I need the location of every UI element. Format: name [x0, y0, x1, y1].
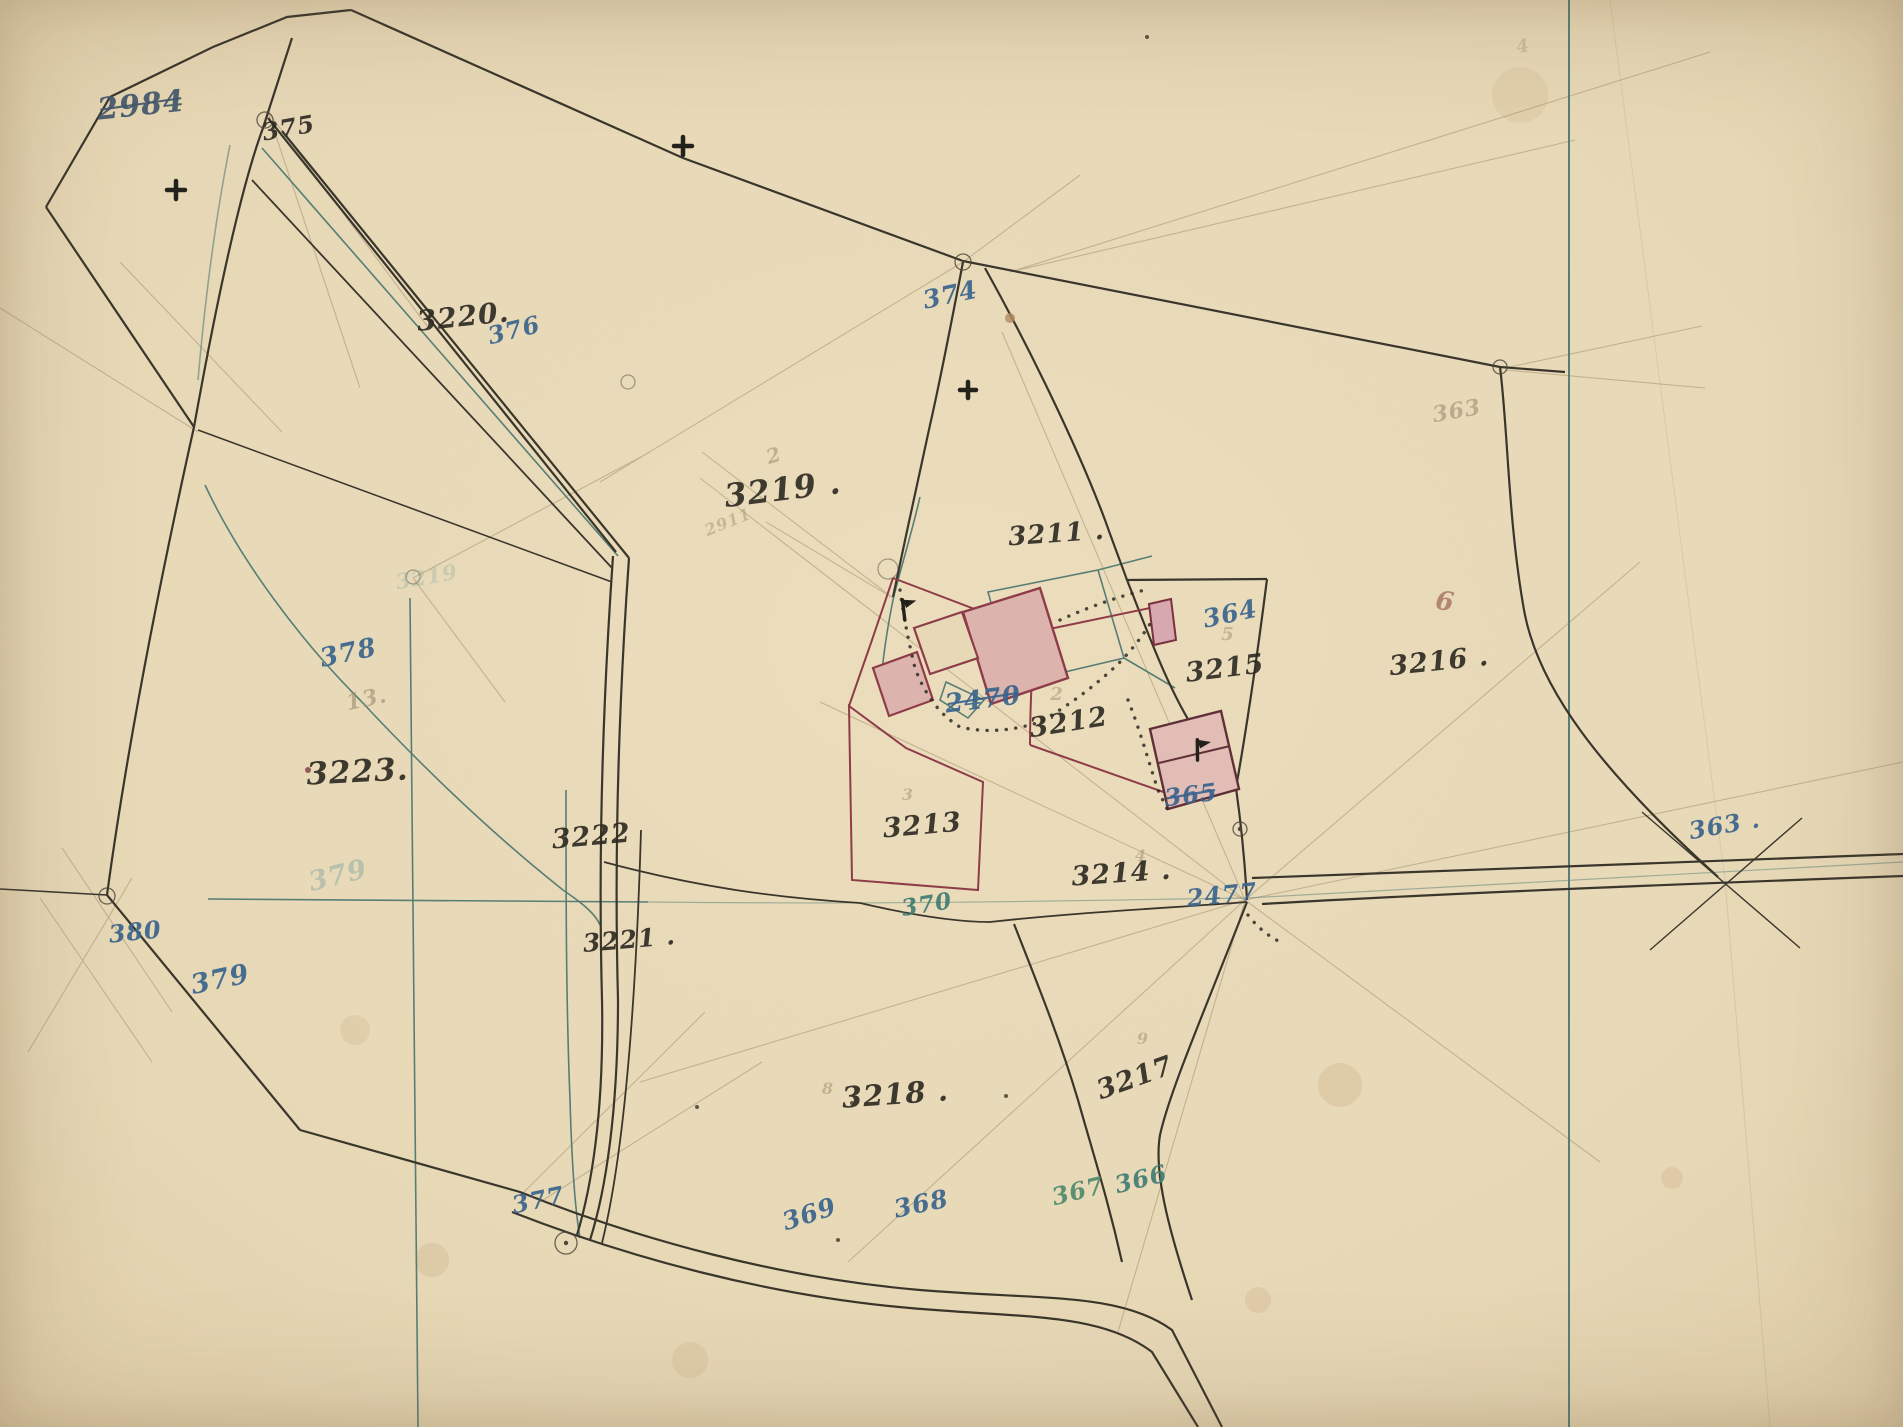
parcel-number: 3223.: [306, 751, 410, 792]
parcel-number: 5: [1221, 624, 1235, 645]
ink-speck: [1004, 1094, 1008, 1098]
parcel-label-380: 380: [107, 914, 163, 948]
paper-stain: [672, 1342, 708, 1378]
building-364: [1149, 599, 1176, 645]
parcel-number: 380: [107, 914, 163, 948]
ink-speck: [836, 1238, 840, 1242]
paper-stain: [1492, 67, 1548, 123]
parcel-number: 2: [1049, 684, 1064, 705]
survey-point-dot: [564, 1241, 568, 1245]
ink-speck: [1005, 313, 1015, 323]
parcel-number: 9: [1137, 1029, 1149, 1048]
parcel-number: 3: [902, 785, 914, 804]
paper-stain: [1318, 1063, 1362, 1107]
parcel-label-3: 3: [902, 785, 914, 804]
paper-stain: [340, 1015, 370, 1045]
parcel-label-8: 8: [821, 1079, 834, 1098]
parcel-label-3223: 3223.: [306, 751, 410, 792]
boundary-line: [1127, 579, 1267, 580]
survey-point-dot: [1238, 827, 1242, 831]
parcel-label-9: 9: [1137, 1029, 1149, 1048]
paper-stain: [415, 1243, 449, 1277]
parcel-number: 8: [821, 1079, 834, 1098]
paper-stain: [1245, 1287, 1271, 1313]
ink-speck: [695, 1105, 699, 1109]
paper-stain: [1661, 1167, 1683, 1189]
parcel-label-5: 5: [1221, 624, 1235, 645]
map-canvas: 29843753220.3763743219 .229113211 .36343…: [0, 0, 1903, 1427]
cadastral-map: hand-drawn cadastral survey map: [0, 0, 1903, 1427]
ink-speck: [1145, 35, 1149, 39]
parcel-label-2: 2: [1049, 684, 1064, 705]
